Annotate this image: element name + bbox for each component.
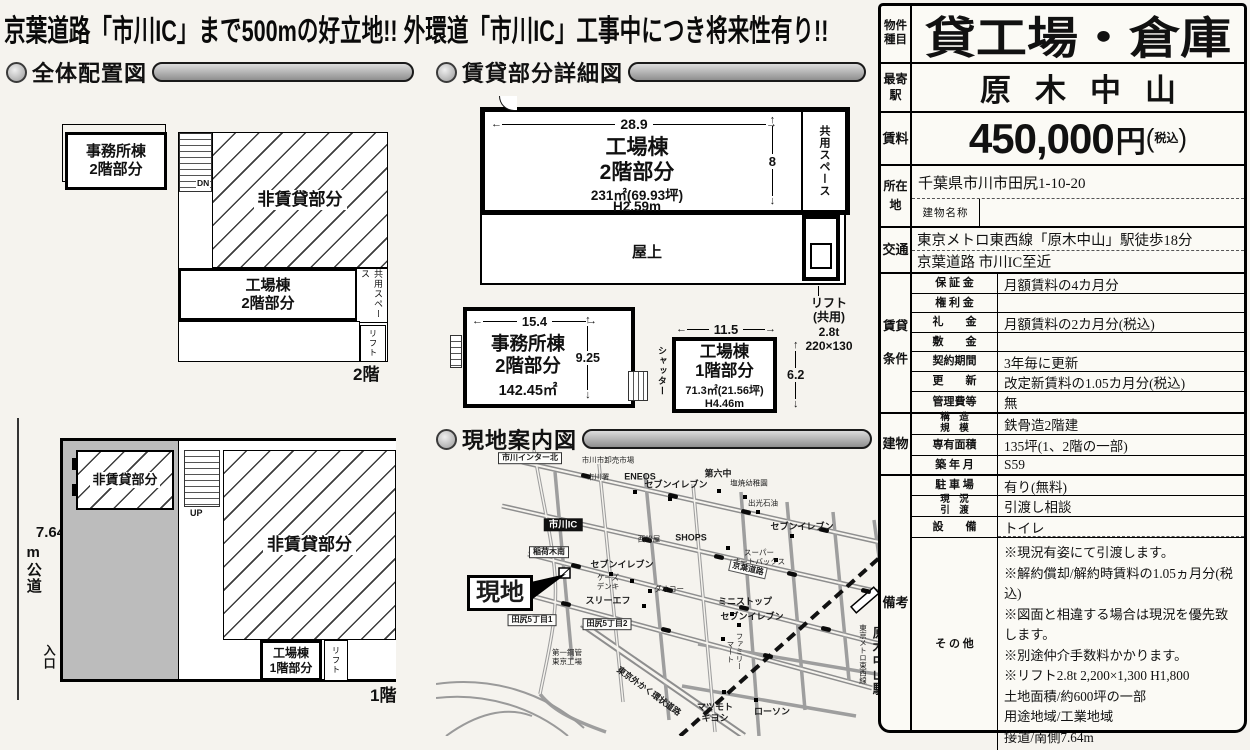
header-bar — [628, 62, 866, 82]
common-space-2f-label: 共用スペース — [359, 269, 385, 322]
floor1-plan: 7.64 m公道 入口 非賃貸部分 UP 非賃貸部分 工場棟 1階部分 リフト … — [14, 418, 406, 720]
map-label-seveneleven-3: セブンイレブン — [590, 560, 653, 571]
map-label-shops: SHOPS — [675, 533, 707, 544]
factory-2f-label: 工場棟 2階部分 — [241, 277, 294, 312]
term-value — [998, 294, 1244, 312]
header-bar — [152, 62, 414, 82]
map-label-matsukiyo: マツモト キヨシ — [697, 702, 733, 724]
building-row: 築 年 月S59 — [912, 456, 1244, 474]
nonrental-2f-area: 非賃貸部分 — [212, 133, 387, 268]
other-line: 接道/南側7.64m — [1004, 728, 1240, 749]
map-label-nishimatsuya: 西松屋 — [638, 535, 661, 544]
group-label: 物件種目 — [881, 6, 912, 62]
row-rent: 賃料 450,000 円 ( 税込 ) — [881, 113, 1244, 166]
floor1-tag: 1階 — [370, 686, 396, 706]
dim-height-6-2: ↑ 6.2 ↓ — [782, 340, 809, 410]
term-label: 管理費等 — [912, 392, 998, 412]
station-value: 原木中山 — [980, 65, 1200, 110]
map-label-idemitsu: 出光石油 — [748, 499, 778, 508]
floor2-plan: 事務所棟 2階部分 DN 非賃貸部分 工場棟 2階部分 共用スペース リフト 2… — [60, 96, 395, 391]
other-line: ※現況有姿にて引渡します。 — [1004, 543, 1240, 564]
map-label-ichikawa-inter-kita: 市川インター北 — [498, 452, 562, 464]
arrow-down-icon: ↓ — [770, 196, 776, 207]
rent-tax-paren: ( — [1146, 123, 1155, 154]
factory-2f-detail: ← 28.9 → 工場棟 2階部分 231㎡(69.93坪) H2.59m ↑ … — [480, 107, 850, 215]
building-name-label: 建物名称 — [912, 199, 980, 226]
group-label: 最寄駅 — [881, 64, 912, 111]
common-space-detail: 共用スペース — [801, 112, 845, 210]
nonrental-1f-small: 非賃貸部分 — [76, 450, 174, 510]
other-line: ※解約償却/解約時賃料の1.05ヵ月分(税込) — [1004, 564, 1240, 605]
other-line: 用途地域/工業地域 — [1004, 707, 1240, 728]
nonrental-1f-area: 非賃貸部分 — [223, 450, 396, 640]
term-row: 更 新改定新賃料の1.05カ月分(税込) — [912, 372, 1244, 392]
term-label: 権 利 金 — [912, 294, 998, 312]
building-attr-label: 築 年 月 — [912, 456, 998, 474]
lift-1f-label: リフト — [330, 646, 342, 675]
other-line: 土地面積/約600坪の一部 — [1004, 687, 1240, 708]
note-label: 現 況 引 渡 — [912, 496, 998, 516]
property-sheet: 物件種目 貸工場・倉庫 最寄駅 原木中山 賃料 450,000 円 ( 税込 )… — [878, 3, 1247, 733]
arrow-left-icon: ← — [472, 316, 483, 327]
nonrental-2f-label: 非賃貸部分 — [254, 190, 347, 210]
property-type-value: 貸工場・倉庫 — [925, 2, 1231, 66]
rent-unit: 円 — [1116, 117, 1146, 161]
arrow-down-icon: ↓ — [585, 390, 591, 401]
other-row: そ の 他 ※現況有姿にて引渡します。 ※解約償却/解約時賃料の1.05ヵ月分(… — [912, 538, 1244, 750]
note-value: 有り(無料) — [998, 476, 1244, 495]
office-2f-box: 事務所棟 2階部分 — [65, 132, 167, 190]
map-label-tajiri5-2: 田尻5丁目2 — [583, 618, 632, 630]
site-map: 市川インター北 市川市卸売市場 市川署 ENEOS セブンイレブン 第六中 塩焼… — [436, 448, 888, 736]
other-line: ※リフト2.8t 2,200×1,300 H1,800 — [1004, 666, 1240, 687]
floor2-tag: 2階 — [353, 365, 379, 385]
access-line-2: 京葉道路 市川IC至近 — [912, 251, 1244, 272]
rent-tax-paren: ) — [1178, 123, 1187, 154]
map-label-factory: 第一鋼管 東京工場 — [552, 648, 582, 666]
map-label-police: 市川署 — [587, 473, 610, 482]
door-arc-icon — [499, 96, 517, 111]
other-line: ※図面と相違する場合は現況を優先致します。 — [1004, 605, 1240, 646]
term-value: 月額賃料の4カ月分 — [998, 274, 1244, 293]
other-label: そ の 他 — [912, 538, 998, 750]
lift-cage — [810, 243, 832, 269]
side-stairs — [628, 371, 648, 401]
building-row: 専有面積135坪(1、2階の一部) — [912, 435, 1244, 456]
stairs-dn-label: DN — [196, 178, 210, 188]
term-value: 月額賃料の2カ月分(税込) — [998, 313, 1244, 332]
roof-area: 屋上 — [480, 215, 846, 285]
dim-number: 8 — [764, 154, 781, 169]
map-label-school: 第六中 — [704, 469, 731, 480]
dim-number: 28.9 — [615, 116, 652, 132]
building-attr-label: 専有面積 — [912, 435, 998, 455]
bullet-icon — [6, 62, 27, 83]
map-label-seveneleven-2: セブンイレブン — [770, 522, 833, 533]
building-name-value — [980, 199, 1244, 226]
building-attr-value: 鉄骨造2階建 — [998, 414, 1244, 434]
door-mark — [72, 484, 77, 496]
access-line-1: 東京メトロ東西線「原木中山」駅徒歩18分 — [912, 228, 1244, 251]
term-label: 契約期間 — [912, 352, 998, 371]
term-label: 保 証 金 — [912, 274, 998, 293]
map-label-site: 現地 — [467, 575, 533, 611]
note-label: 駐 車 場 — [912, 476, 998, 495]
map-label-kindergarten: 塩焼幼稚園 — [730, 479, 768, 488]
roof-label: 屋上 — [632, 241, 662, 262]
rent-tax: 税込 — [1154, 132, 1178, 145]
row-address: 所在地 千葉県市川市田尻1-10-20 建物名称 — [881, 166, 1244, 228]
note-label: 設 備 — [912, 517, 998, 537]
term-row: 契約期間3年毎に更新 — [912, 352, 1244, 372]
facility-value: トイレ — [998, 517, 1244, 537]
group-label: 備考 — [881, 476, 912, 730]
group-label: 所在地 — [881, 166, 912, 226]
header-bar — [582, 429, 872, 449]
map-label-market: 市川市卸売市場 — [582, 456, 635, 465]
section-header-layout: 全体配置図 — [6, 56, 414, 88]
map-label-seveneleven-1: セブンイレブン — [644, 480, 707, 491]
office-2f-name: 事務所棟 2階部分 — [469, 333, 587, 377]
bullet-icon — [436, 62, 457, 83]
address-value: 千葉県市川市田尻1-10-20 — [912, 166, 1244, 199]
other-line: ※別途仲介手数料かかります。 — [1004, 646, 1240, 667]
door-mark — [72, 458, 77, 470]
term-value: 3年毎に更新 — [998, 352, 1244, 371]
section-title: 全体配置図 — [32, 56, 147, 88]
term-label: 礼 金 — [912, 313, 998, 332]
factory-1f-box: 工場棟 1階部分 — [260, 640, 322, 681]
term-value — [998, 333, 1244, 351]
lift-shaft — [802, 215, 840, 281]
dim-number: 15.4 — [517, 314, 552, 329]
row-terms: 賃貸条件 保 証 金月額賃料の4カ月分 権 利 金 礼 金月額賃料の2カ月分(税… — [881, 274, 1244, 414]
map-label-tozai-line: 東京メトロ東西線 — [859, 624, 868, 684]
note-row: 駐 車 場有り(無料) — [912, 476, 1244, 496]
map-label-familymart: ファミリー マート — [726, 632, 744, 670]
term-label: 更 新 — [912, 372, 998, 391]
road-width-text: m公道 — [24, 544, 42, 594]
office-2f-label: 事務所棟 2階部分 — [86, 143, 146, 178]
map-label-toukagi-minami: 稲荷木南 — [529, 546, 569, 558]
arrow-left-icon: ← — [491, 119, 502, 130]
factory-1f-height: H4.46m — [676, 398, 773, 410]
term-row: 権 利 金 — [912, 294, 1244, 313]
dim-width-28-9: ← 28.9 → — [491, 116, 777, 132]
row-notes: 備考 駐 車 場有り(無料) 現 況 引 渡引渡し相談 設 備 トイレ そ の … — [881, 476, 1244, 730]
stairs-up — [184, 450, 220, 507]
arrow-up-icon: ↑ — [770, 115, 776, 126]
arrow-right-icon: → — [765, 324, 776, 335]
arrow-left-icon: ← — [676, 324, 687, 335]
nonrental-1f-label: 非賃貸部分 — [263, 535, 356, 555]
headline-banner: 京葉道路「市川IC」まで500mの好立地!! 外環道「市川IC」工事中につき将来… — [4, 6, 828, 50]
dim-height-9-25: ↑ 9.25 ↓ — [571, 315, 605, 401]
building-attr-value: 135坪(1、2階の一部) — [998, 435, 1244, 455]
factory-1f-area: 71.3㎡(21.56坪) — [676, 382, 773, 398]
note-row: 設 備 トイレ — [912, 517, 1244, 538]
factory-2f-box: 工場棟 2階部分 — [178, 268, 358, 321]
row-property-type: 物件種目 貸工場・倉庫 — [881, 6, 1244, 64]
note-value: 引渡し相談 — [998, 496, 1244, 516]
term-row: 礼 金月額賃料の2カ月分(税込) — [912, 313, 1244, 333]
section-header-detail: 賃貸部分詳細図 — [436, 56, 866, 88]
group-label: 賃料 — [881, 113, 912, 164]
map-label-tajiri5-1: 田尻5丁目1 — [508, 614, 557, 626]
corridor-2f — [178, 321, 360, 362]
lift-1f: リフト — [324, 640, 348, 681]
entrance-label: 入口 — [42, 644, 56, 670]
term-value: 無 — [998, 392, 1244, 412]
map-label-ministop: ミニストップ — [718, 597, 772, 608]
row-station: 最寄駅 原木中山 — [881, 64, 1244, 113]
map-label-threef: スリーエフ — [585, 596, 630, 607]
nonrental-1f-small-label: 非賃貸部分 — [90, 472, 159, 487]
factory-1f-label: 工場棟 1階部分 — [270, 646, 313, 674]
building-attr-label: 構 造 規 模 — [912, 414, 998, 434]
shutter-label: シャッター — [656, 346, 669, 396]
term-row: 敷 金 — [912, 333, 1244, 352]
factory-1f-name: 工場棟 1階部分 — [676, 343, 773, 382]
map-label-ichikawa-ic: 市川IC — [544, 518, 583, 531]
term-label: 敷 金 — [912, 333, 998, 351]
arrow-down-icon: ↓ — [793, 399, 799, 410]
term-value: 改定新賃料の1.05カ月分(税込) — [998, 372, 1244, 391]
note-row: 現 況 引 渡引渡し相談 — [912, 496, 1244, 517]
map-label-lawson: ローソン — [754, 707, 790, 718]
dim-number: 6.2 — [782, 368, 809, 382]
common-space-2f: 共用スペース — [356, 268, 388, 323]
rental-detail: ← 28.9 → 工場棟 2階部分 231㎡(69.93坪) H2.59m ↑ … — [450, 90, 890, 425]
building-attr-value: S59 — [998, 456, 1244, 474]
site-outline-1f: 非賃貸部分 UP 非賃貸部分 工場棟 1階部分 リフト — [60, 438, 396, 682]
section-title: 賃貸部分詳細図 — [462, 56, 623, 88]
side-stairs — [450, 335, 462, 368]
factory-1f-detail: 工場棟 1階部分 71.3㎡(21.56坪) H4.46m — [672, 337, 777, 413]
map-label-seveneleven-4: セブンイレブン — [720, 612, 783, 623]
factory-2f-name: 工場棟 2階部分 — [485, 136, 789, 186]
dim-height-8: ↑ 8 ↓ — [764, 115, 781, 207]
office-2f-detail: ← 15.4 → 事務所棟 2階部分 142.45㎡ ↑ 9.25 ↓ — [463, 307, 635, 408]
term-row: 保 証 金月額賃料の4カ月分 — [912, 274, 1244, 294]
arrow-up-icon: ↑ — [585, 315, 591, 326]
stairs-up-label: UP — [189, 508, 204, 518]
common-space-detail-label: 共用スペース — [816, 125, 832, 197]
bullet-icon — [436, 429, 457, 450]
group-label: 交通 — [881, 228, 912, 272]
row-building: 建物 構 造 規 模鉄骨造2階建 専有面積135坪(1、2階の一部) 築 年 月… — [881, 414, 1244, 476]
office-2f-area: 142.45㎡ — [469, 379, 587, 400]
lift-pointer-line — [818, 286, 819, 296]
lift-2f-label: リフト — [367, 329, 379, 358]
map-label-ksdenki: ケーズ デンキ — [597, 573, 620, 591]
map-label-daoko: ダオコー — [654, 585, 684, 594]
dim-number: 9.25 — [571, 351, 605, 365]
dim-width-11-5: ← 11.5 → — [676, 322, 776, 337]
lift-2f: リフト — [360, 325, 386, 362]
road-measure-line — [17, 418, 19, 700]
row-access: 交通 東京メトロ東西線「原木中山」駅徒歩18分 京葉道路 市川IC至近 — [881, 228, 1244, 274]
group-label: 建物 — [881, 414, 912, 474]
arrow-up-icon: ↑ — [793, 340, 799, 351]
rent-amount: 450,000 — [969, 115, 1114, 163]
dim-number: 11.5 — [709, 322, 744, 337]
building-row: 構 造 規 模鉄骨造2階建 — [912, 414, 1244, 435]
factory-2f-height: H2.59m — [485, 199, 789, 214]
group-label: 賃貸条件 — [881, 274, 912, 412]
term-row: 管理費等無 — [912, 392, 1244, 412]
